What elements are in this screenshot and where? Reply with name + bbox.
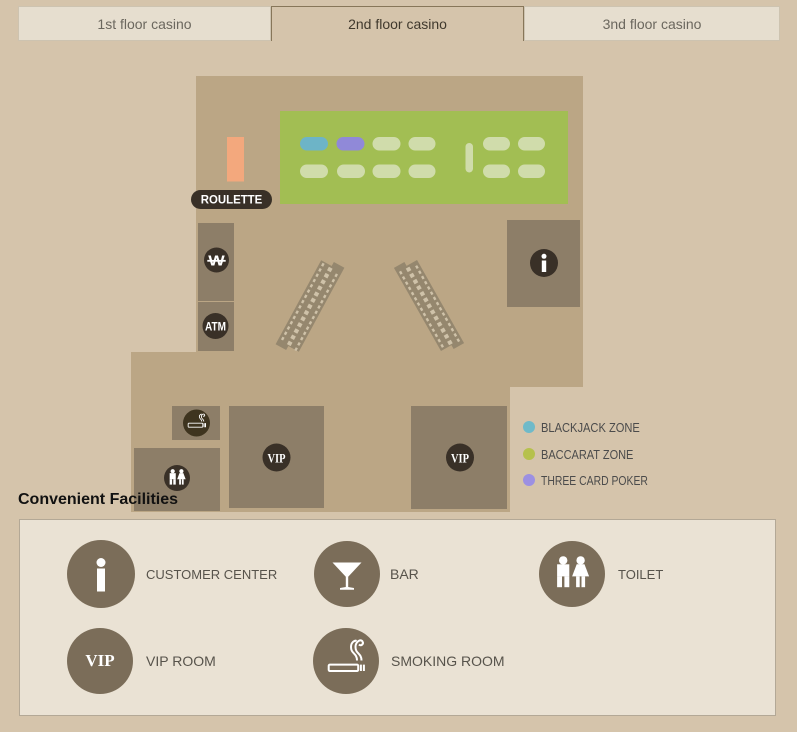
svg-text:VIP: VIP [268, 450, 286, 465]
svg-text:VIP: VIP [451, 450, 469, 465]
svg-text:ROULETTE: ROULETTE [201, 193, 263, 207]
svg-text:ATM: ATM [205, 320, 226, 334]
